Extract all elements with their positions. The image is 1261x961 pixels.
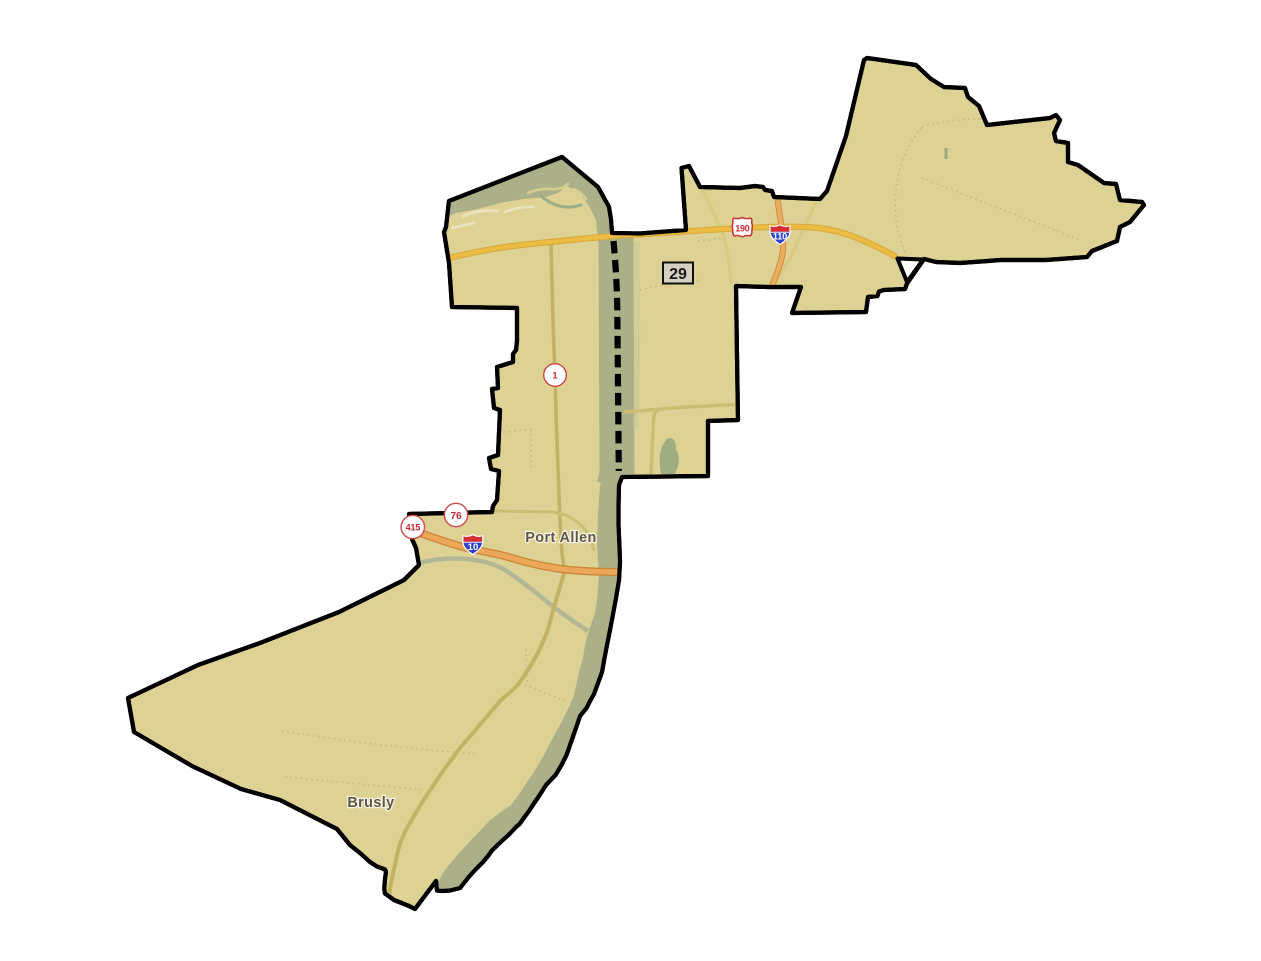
svg-text:1: 1 — [552, 371, 557, 381]
svg-text:Brusly: Brusly — [347, 795, 394, 811]
svg-text:Port Allen: Port Allen — [525, 530, 596, 546]
svg-text:415: 415 — [406, 522, 421, 532]
svg-text:190: 190 — [735, 224, 749, 234]
svg-text:10: 10 — [468, 542, 479, 553]
svg-text:29: 29 — [669, 266, 687, 283]
svg-text:110: 110 — [773, 232, 787, 242]
svg-text:76: 76 — [450, 511, 462, 522]
